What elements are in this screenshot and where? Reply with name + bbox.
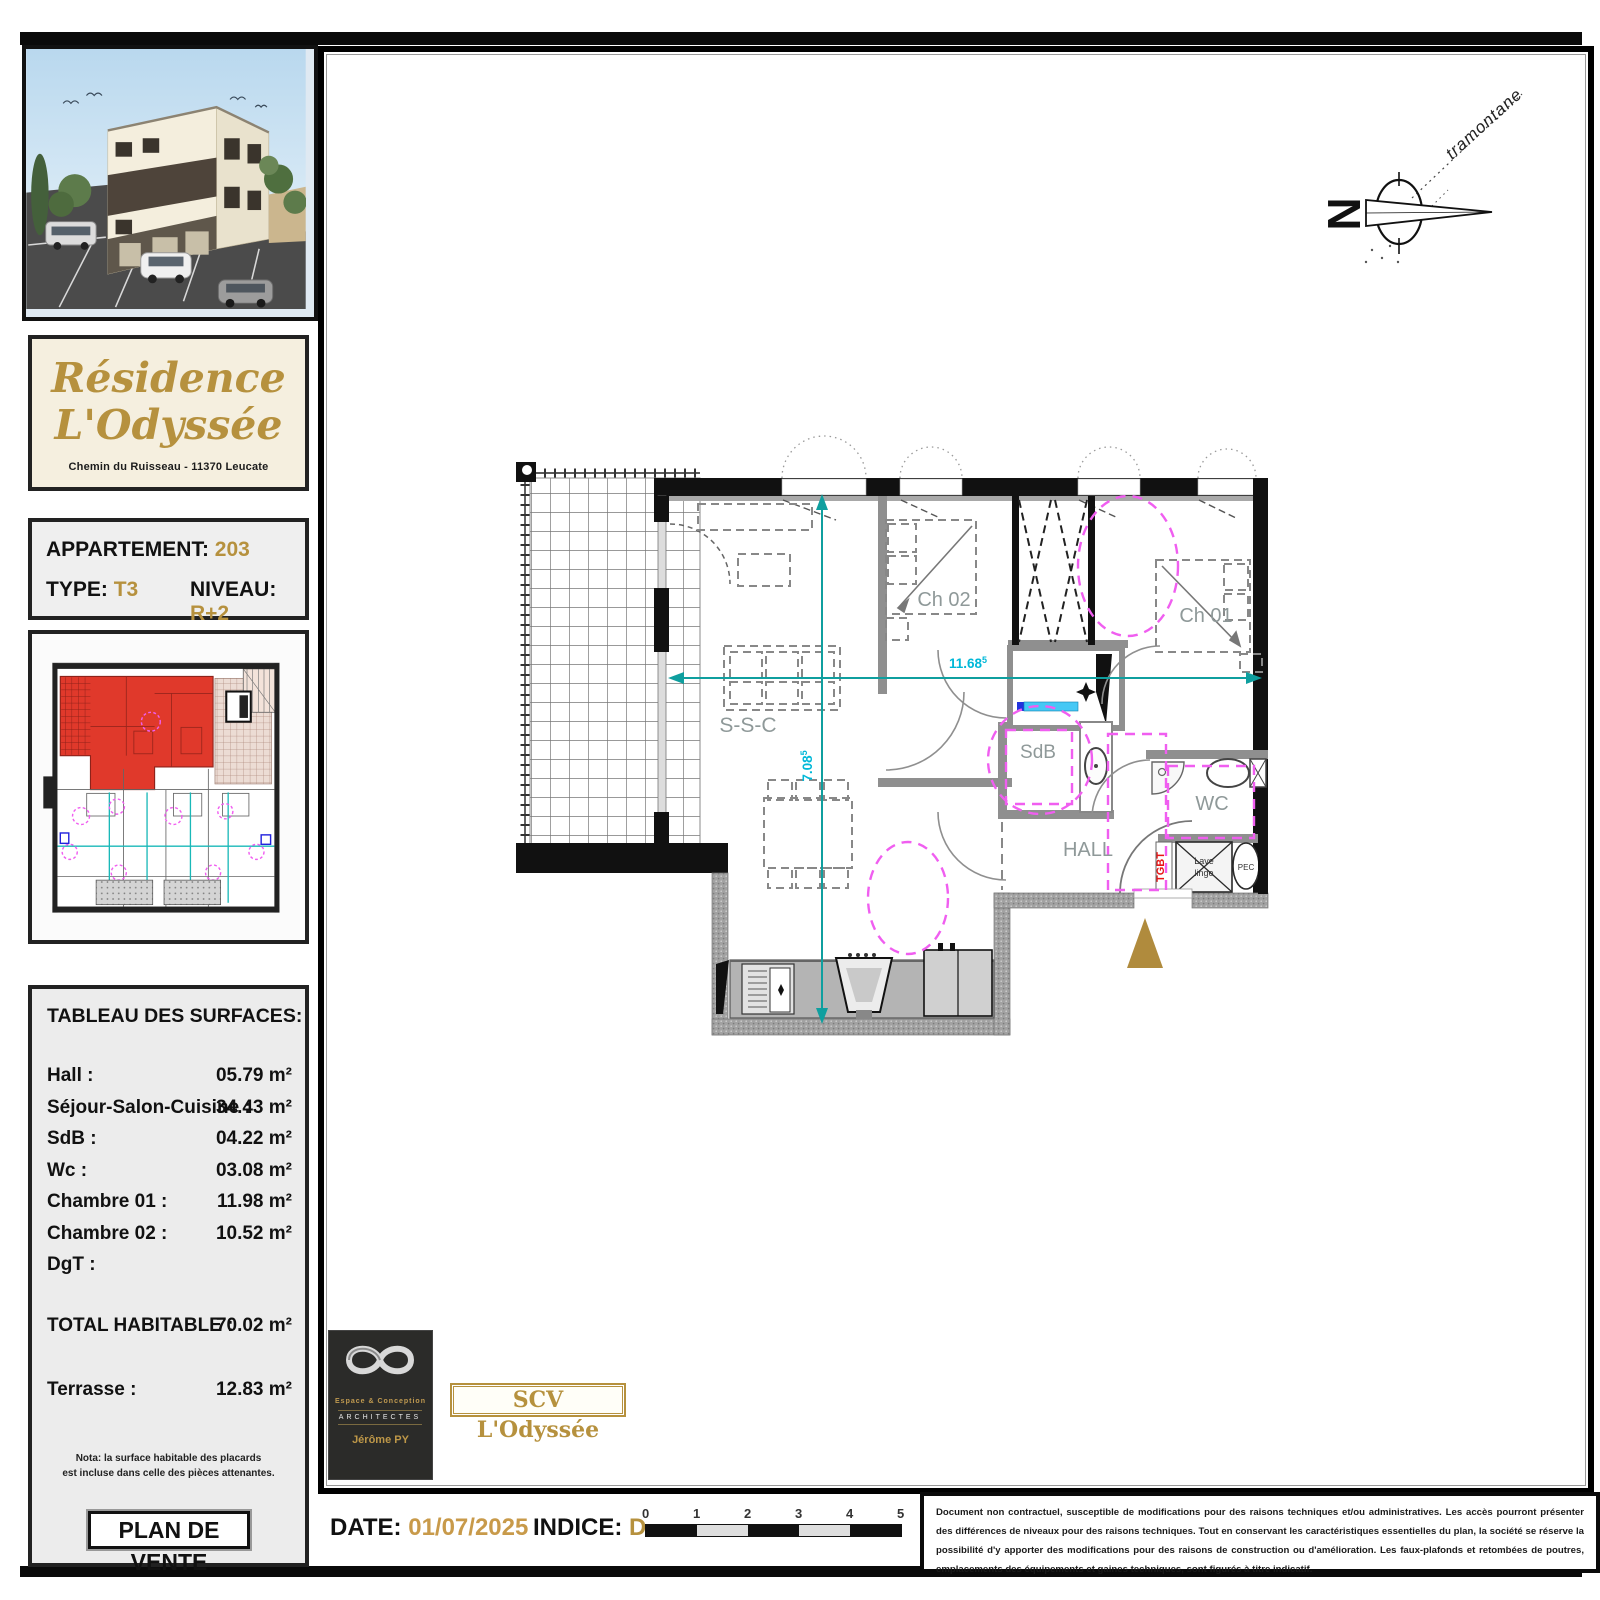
level-label: NIVEAU: (190, 578, 276, 601)
window-swing-arcs (782, 436, 1256, 478)
technical-nook: TGBT Lave linge PEC (1155, 810, 1268, 894)
compass-dots (1365, 245, 1399, 263)
washer-label-1: Lave (1194, 856, 1214, 866)
key-plan-illustration (32, 634, 297, 932)
north-compass: tramontane N (1280, 85, 1540, 285)
key-plan-terrace-1 (96, 880, 153, 905)
bathroom-label: SdB (1020, 742, 1056, 763)
legal-disclaimer-text: Document non contractuel, susceptible de… (936, 1503, 1584, 1579)
terrace (516, 462, 728, 873)
floor-plan: TGBT Lave linge PEC (470, 390, 1320, 1050)
date-value: 01/07/2025 (408, 1514, 528, 1541)
residence-title-line1: Résidence (32, 355, 305, 402)
scale-bar: 0 1 2 3 4 5 (645, 1506, 903, 1548)
architect-title: ARCHITECTES (338, 1410, 422, 1425)
architect-logo: Espace & Conception ARCHITECTES Jérôme P… (328, 1330, 433, 1480)
entry-closet (1010, 648, 1122, 728)
bedroom1-label: Ch 01 (1179, 605, 1232, 627)
height-dimension: 7.085 (799, 750, 815, 781)
table-row: SdB :04.22 m² (47, 1128, 292, 1160)
scale-bar-numbers: 0 1 2 3 4 5 (645, 1506, 903, 1524)
surfaces-rows: Hall :05.79 m² Séjour-Salon-Cuisine :34.… (47, 1065, 292, 1286)
apartment-type-row: TYPE: T3 (46, 578, 138, 602)
table-row: Chambre 02 :10.52 m² (47, 1223, 292, 1255)
level-value: R+2 (190, 602, 229, 625)
apartment-level-row: NIVEAU: R+2 (190, 578, 305, 626)
building-render-photo (22, 45, 318, 321)
bed-arrows (898, 526, 1240, 646)
developer-name-box: SCV L'Odyssée (450, 1383, 626, 1417)
floor-key-plan (28, 630, 309, 944)
scale-bar-segments (645, 1524, 902, 1537)
wc-label: WC (1195, 793, 1228, 815)
table-row: Hall :05.79 m² (47, 1065, 292, 1097)
key-plan-terrace-2 (164, 880, 221, 905)
washer-label-2: linge (1194, 868, 1213, 878)
plan-de-vente-stamp: PLAN DE VENTE (88, 1511, 250, 1549)
water-heater-label: PEC (1238, 863, 1255, 872)
date-label: DATE: (330, 1514, 402, 1541)
infinity-logo-icon (329, 1331, 432, 1389)
apartment-number-row: APPARTEMENT: 203 (46, 538, 250, 562)
apartment-info-block: APPARTEMENT: 203 TYPE: T3 NIVEAU: R+2 (28, 518, 309, 620)
north-letter: N (1318, 197, 1370, 230)
residence-title-line2: L'Odyssée (32, 402, 305, 449)
architect-studio-name: Espace & Conception (329, 1398, 432, 1405)
surfaces-table: TABLEAU DES SURFACES: Hall :05.79 m² Séj… (28, 985, 309, 1567)
bedroom2-label: Ch 02 (917, 589, 970, 611)
table-row: Chambre 01 :11.98 m² (47, 1191, 292, 1223)
architect-person: Jérôme PY (329, 1434, 432, 1446)
legal-disclaimer-box: Document non contractuel, susceptible de… (920, 1492, 1600, 1573)
date-block: DATE: 01/07/2025 (330, 1514, 528, 1542)
type-label: TYPE: (46, 578, 108, 601)
indice-label: INDICE: (533, 1514, 622, 1541)
apartment-number: 203 (215, 538, 250, 561)
width-dimension: 11.685 (949, 655, 987, 671)
residence-address: Chemin du Ruisseau - 11370 Leucate (32, 461, 305, 473)
wind-label: tramontane (1442, 85, 1526, 163)
nota-text: Nota: la surface habitable des placards … (32, 1451, 305, 1481)
kitchen-counter (716, 943, 994, 1019)
entrance-arrow-icon (1127, 918, 1163, 968)
hall-label: HALL (1063, 839, 1113, 861)
key-plan-common-areas (215, 669, 275, 784)
indice-block: INDICE: D (533, 1514, 646, 1542)
building-render-illustration (26, 49, 306, 309)
total-habitable-row: TOTAL HABITABLE : 70.02 m² (47, 1315, 292, 1337)
top-border-bar (20, 32, 1582, 45)
table-row: DgT : (47, 1254, 292, 1286)
type-value: T3 (114, 578, 139, 601)
dressing-closet (1012, 496, 1095, 646)
terrace-row: Terrasse : 12.83 m² (47, 1379, 292, 1401)
living-label: S-S-C (719, 714, 776, 737)
table-row: Wc :03.08 m² (47, 1160, 292, 1192)
apartment-label: APPARTEMENT: (46, 538, 209, 561)
surfaces-title: TABLEAU DES SURFACES: (47, 1005, 302, 1028)
table-row: Séjour-Salon-Cuisine :34.43 m² (47, 1097, 292, 1129)
residence-title-block: Résidence L'Odyssée Chemin du Ruisseau -… (28, 335, 309, 491)
